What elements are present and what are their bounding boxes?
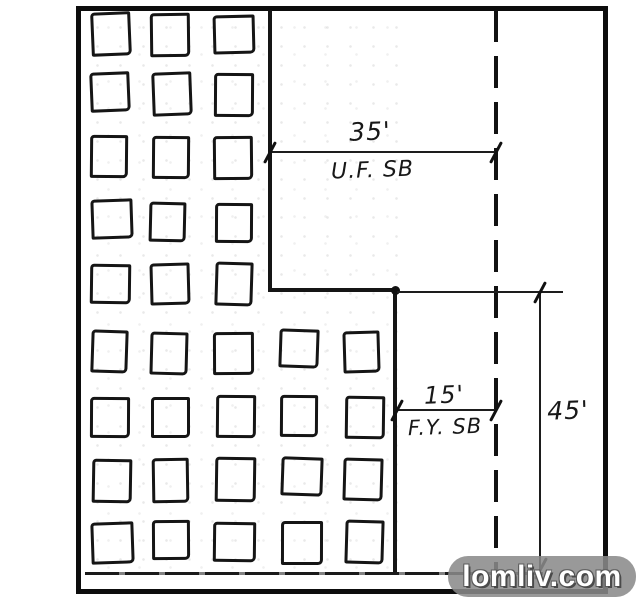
dim-45-value: 45' — [542, 395, 595, 426]
dim-line-45-vertical — [539, 292, 541, 570]
dim-35-value: 35' — [335, 116, 406, 147]
dim-15-sublabel: F.Y. SB — [399, 413, 492, 440]
dim-line-35 — [271, 151, 497, 153]
lower-boundary-line — [393, 288, 397, 575]
watermark-text: lomliv.com — [462, 560, 621, 594]
step-boundary-line — [268, 288, 398, 292]
dim-15-value: 15' — [413, 380, 476, 410]
dim-35-sublabel: U.F. SB — [320, 156, 426, 185]
dim-line-15 — [397, 409, 497, 411]
dashed-property-line — [494, 10, 498, 590]
drawing-frame — [76, 6, 608, 594]
sketch-canvas: 35' U.F. SB 15' F.Y. SB 45' lomliv.com — [0, 0, 640, 601]
watermark-badge: lomliv.com — [448, 556, 636, 597]
